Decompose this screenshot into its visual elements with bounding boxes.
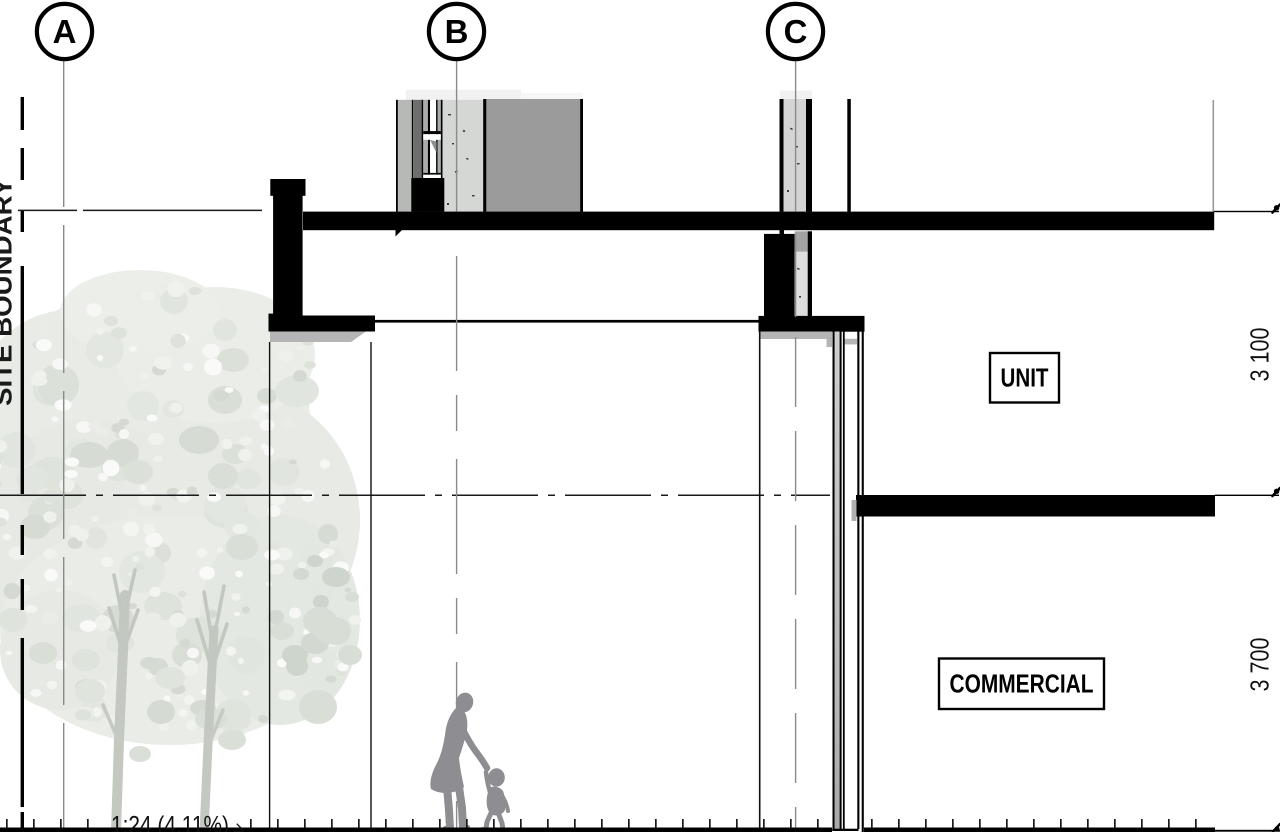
svg-text:SITE BOUNDARY: SITE BOUNDARY xyxy=(0,178,18,406)
svg-text:COMMERCIAL: COMMERCIAL xyxy=(950,669,1094,699)
svg-text:C: C xyxy=(784,13,808,50)
svg-text:1:24 (4.11%): 1:24 (4.11%) xyxy=(111,812,229,832)
svg-text:3 100: 3 100 xyxy=(1245,328,1275,382)
svg-text:B: B xyxy=(445,13,469,50)
svg-text:A: A xyxy=(53,13,77,50)
svg-text:UNIT: UNIT xyxy=(1001,363,1049,393)
svg-text:3 700: 3 700 xyxy=(1245,638,1275,692)
